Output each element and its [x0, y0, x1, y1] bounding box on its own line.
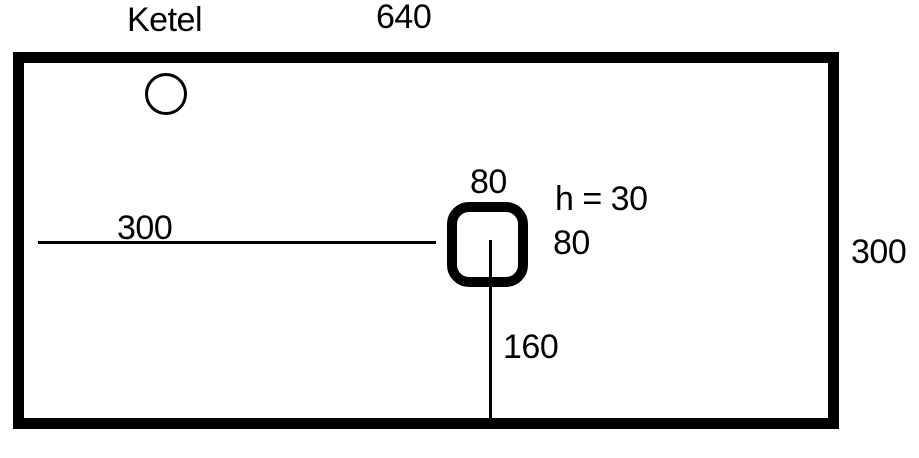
diagram-canvas: Ketel 640 300 80 h = 30 80 160 300	[0, 0, 919, 458]
diagram-title: Ketel	[127, 3, 202, 38]
burner-circle	[145, 73, 187, 115]
hole-rounded-square	[447, 202, 528, 287]
dimension-label-left-offset: 300	[117, 211, 172, 246]
dimension-label-hole-height: 80	[553, 226, 590, 261]
left-offset-dimension-line	[38, 241, 436, 244]
dimension-label-hole-width: 80	[470, 165, 507, 200]
dimension-label-hole-note: h = 30	[555, 182, 647, 217]
dimension-label-top-width: 640	[376, 0, 431, 35]
dimension-label-bottom-offset: 160	[503, 330, 558, 365]
dimension-label-right-height: 300	[851, 235, 906, 270]
